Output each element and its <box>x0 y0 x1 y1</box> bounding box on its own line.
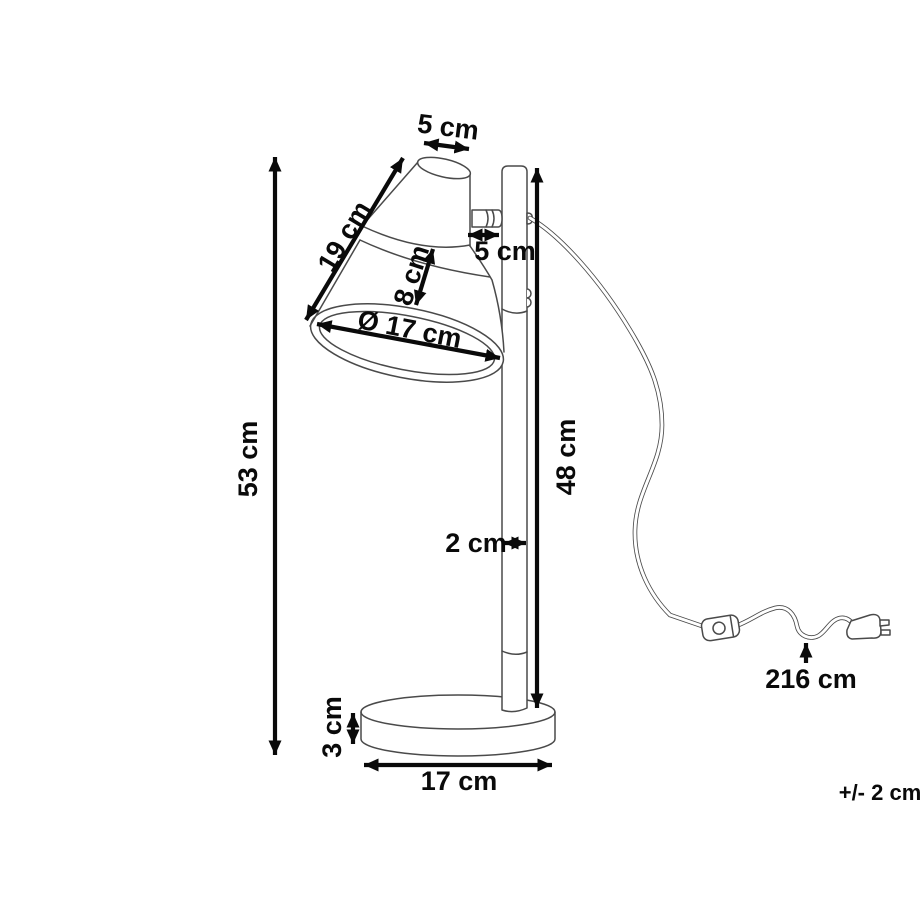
dimension-annotations: 53 cm 48 cm 5 cm 19 cm 8 cm <box>233 108 920 805</box>
plug-pin-top <box>880 620 889 626</box>
plug-pin-bottom <box>881 630 890 635</box>
label-shade-top-width: 5 cm <box>416 108 481 145</box>
label-base-diameter: 17 cm <box>421 766 498 796</box>
lamp-arm <box>472 210 502 227</box>
dim-cable-length: 216 cm <box>765 643 857 694</box>
power-cable-assembly <box>530 218 890 642</box>
label-base-height: 3 cm <box>317 696 347 758</box>
lamp-dimension-diagram: 53 cm 48 cm 5 cm 19 cm 8 cm <box>0 0 920 920</box>
plug-body <box>847 615 881 639</box>
dim-arm-length: 5 cm <box>468 235 536 266</box>
dim-total-height: 53 cm <box>233 157 275 755</box>
dim-base-diameter: 17 cm <box>364 765 552 796</box>
dim-pole-height: 48 cm <box>537 168 581 708</box>
dim-base-height: 3 cm <box>317 696 353 758</box>
cable-run-2 <box>736 607 853 637</box>
power-plug <box>847 615 890 639</box>
label-arm-length: 5 cm <box>474 236 536 266</box>
pole-screw-bump-upper <box>527 289 531 298</box>
label-pole-height: 48 cm <box>551 419 581 496</box>
label-pole-diameter: 2 cm <box>445 528 507 558</box>
dim-shade-top-width: 5 cm <box>416 108 481 149</box>
diagram-svg: 53 cm 48 cm 5 cm 19 cm 8 cm <box>0 0 920 920</box>
label-tolerance: +/- 2 cm <box>839 780 920 805</box>
inline-switch <box>701 614 741 642</box>
label-cable-length: 216 cm <box>765 664 857 694</box>
tolerance-note: +/- 2 cm <box>839 780 920 805</box>
label-total-height: 53 cm <box>233 421 263 498</box>
pole-screw-bump-lower <box>527 298 531 307</box>
